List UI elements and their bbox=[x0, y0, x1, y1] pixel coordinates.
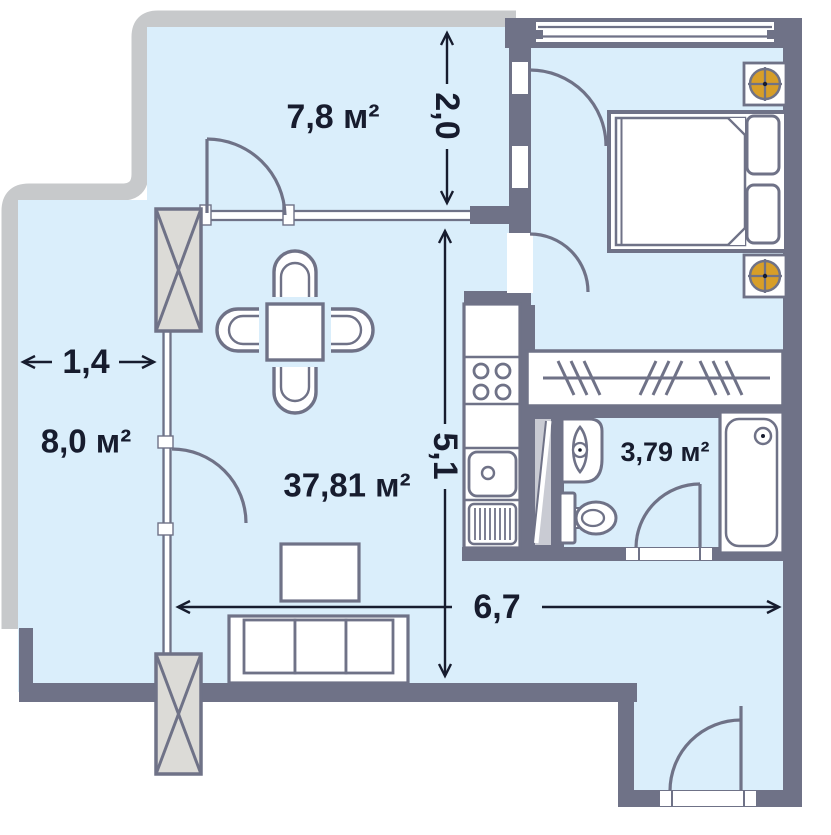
sofa-cushion bbox=[346, 620, 393, 673]
partition-thick-segment bbox=[470, 206, 511, 224]
window-end-tick-left bbox=[536, 30, 543, 39]
main-bottom-wall bbox=[19, 683, 637, 702]
bedroom-window bbox=[536, 22, 774, 42]
ventilation-column bbox=[156, 209, 201, 331]
balcony-corner-wall bbox=[19, 628, 33, 688]
double-bed bbox=[609, 112, 786, 251]
table-top bbox=[267, 304, 323, 360]
door-jamb bbox=[158, 523, 173, 535]
room-label-bathroom: 3,79 м² bbox=[620, 437, 709, 467]
pillow bbox=[747, 116, 779, 174]
entry-door-opening bbox=[660, 791, 756, 806]
dimension-label: 5,1 bbox=[426, 432, 464, 479]
room-label-living: 37,81 м² bbox=[283, 467, 410, 504]
sofa bbox=[229, 616, 408, 683]
pillow bbox=[747, 185, 779, 243]
window-end-tick-right bbox=[767, 30, 774, 39]
kitchen-sink-icon bbox=[469, 452, 516, 496]
bedroom-door-opening bbox=[507, 233, 533, 293]
sofa-cushion bbox=[295, 620, 346, 673]
door-jamb bbox=[158, 436, 173, 448]
chair-icon bbox=[331, 309, 373, 351]
chair-icon bbox=[274, 367, 316, 413]
room-label-balcony: 8,0 м² bbox=[41, 423, 131, 460]
sofa-cushion bbox=[244, 620, 295, 673]
dimension-label: 1,4 bbox=[62, 343, 109, 381]
lamp-center-dot bbox=[763, 82, 767, 86]
ceiling-lamp bbox=[744, 63, 786, 105]
door-jamb-strip bbox=[512, 62, 528, 94]
ventilation-column bbox=[156, 654, 201, 774]
dimension-label: 6,7 bbox=[473, 588, 520, 626]
ceiling-lamp bbox=[744, 255, 786, 297]
dimension-label: 2,0 bbox=[428, 92, 466, 139]
bathtub-icon bbox=[720, 412, 783, 553]
window-opening bbox=[536, 22, 774, 42]
floor-plan: 2,0 5,1 1,4 6,7 7,8 м² 8,0 м² 37,81 м² bbox=[0, 0, 831, 835]
chair-icon bbox=[217, 309, 259, 351]
glazing-core bbox=[165, 331, 170, 657]
floor-plan-page: 2,0 5,1 1,4 6,7 7,8 м² 8,0 м² 37,81 м² bbox=[0, 0, 831, 835]
door-jamb-strip bbox=[512, 146, 528, 188]
utility-shaft bbox=[533, 418, 552, 546]
dish-drainer-icon bbox=[469, 504, 516, 544]
chair-icon bbox=[274, 251, 316, 297]
tv-stand bbox=[281, 544, 359, 601]
wardrobe bbox=[527, 351, 783, 406]
bath-sink-icon bbox=[562, 419, 602, 482]
bed-blanket bbox=[616, 118, 745, 245]
lamp-center-dot bbox=[763, 274, 767, 278]
room-label-loggia: 7,8 м² bbox=[286, 98, 379, 136]
